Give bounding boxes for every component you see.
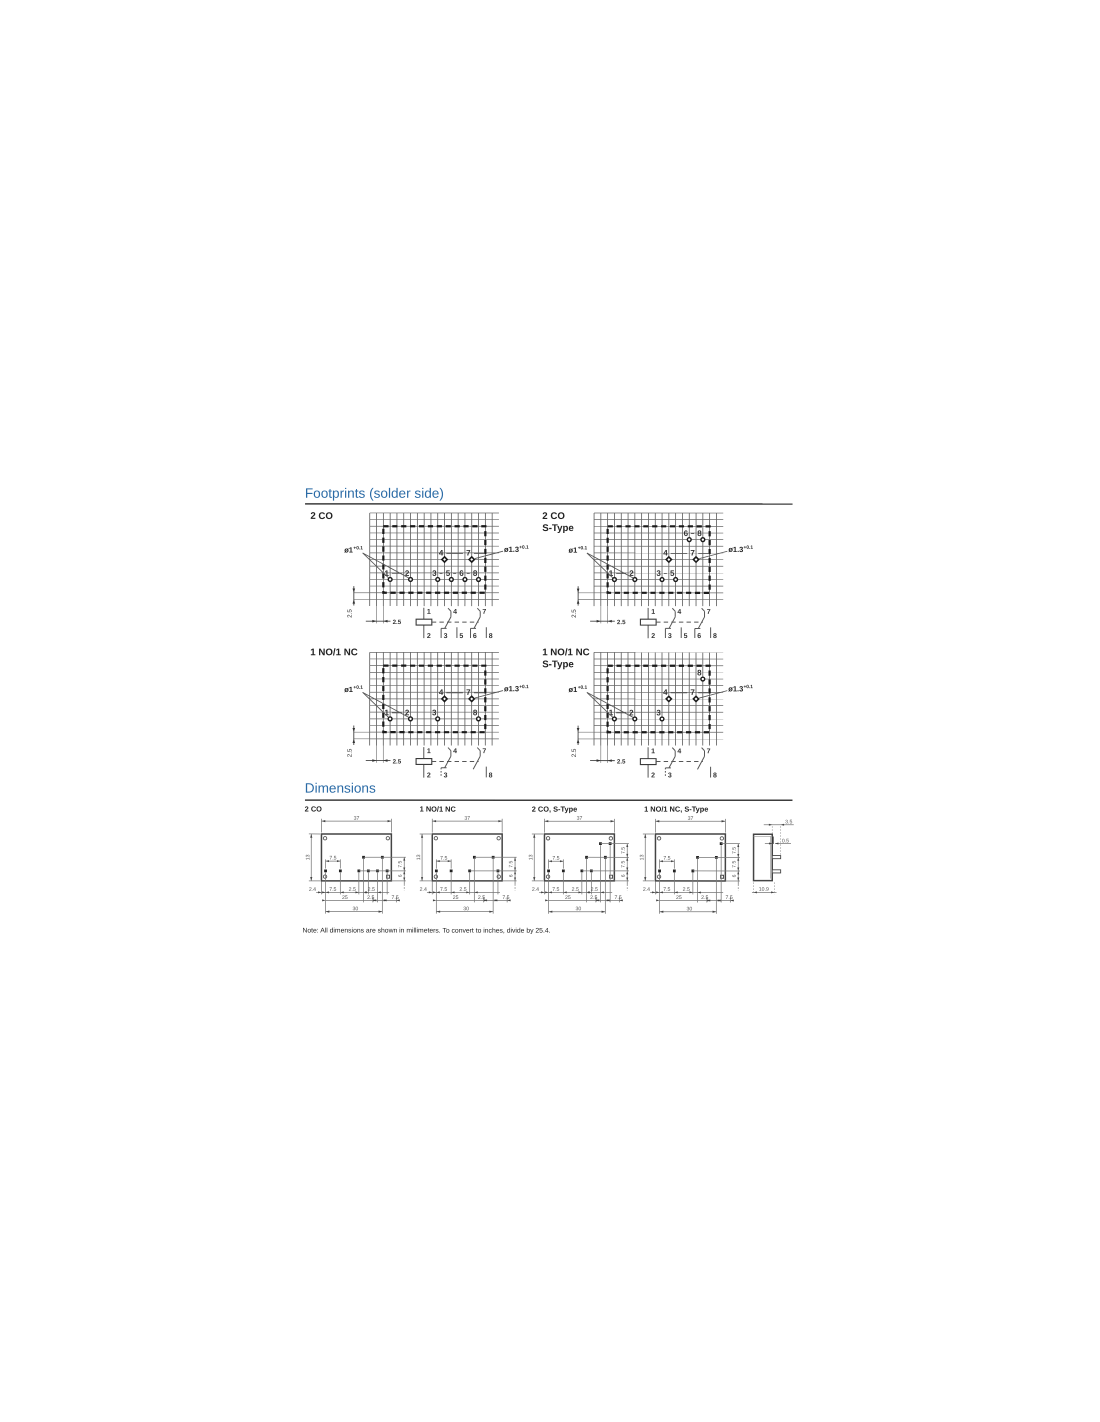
svg-text:7.5: 7.5 <box>726 895 733 901</box>
svg-text:7.5: 7.5 <box>732 847 738 854</box>
svg-text:S-Type: S-Type <box>542 523 574 534</box>
svg-text:8: 8 <box>489 772 493 779</box>
svg-text:30: 30 <box>686 906 692 912</box>
svg-text:3: 3 <box>668 772 672 779</box>
svg-text:7.5: 7.5 <box>552 887 559 893</box>
svg-text:2 CO: 2 CO <box>305 805 323 814</box>
svg-text:2 CO: 2 CO <box>310 511 333 522</box>
svg-text:25: 25 <box>453 895 459 901</box>
svg-text:+0.1: +0.1 <box>519 545 529 551</box>
svg-text:7.5: 7.5 <box>508 860 514 867</box>
svg-text:7.5: 7.5 <box>621 847 627 854</box>
svg-text:+0.1: +0.1 <box>353 545 363 551</box>
svg-text:7: 7 <box>707 748 711 755</box>
svg-text:Note: All dimensions are shown: Note: All dimensions are shown in millim… <box>302 928 550 935</box>
svg-text:3: 3 <box>656 708 661 717</box>
svg-text:1 NO/1 NC, S-Type: 1 NO/1 NC, S-Type <box>644 805 708 814</box>
svg-text:8: 8 <box>713 772 717 779</box>
svg-text:Dimensions: Dimensions <box>305 781 376 796</box>
svg-text:2.4: 2.4 <box>532 887 539 893</box>
svg-text:5: 5 <box>446 569 451 578</box>
svg-text:7.5: 7.5 <box>329 856 336 862</box>
svg-text:7.5: 7.5 <box>329 887 336 893</box>
svg-text:+0.1: +0.1 <box>744 545 754 551</box>
svg-text:2.5: 2.5 <box>393 619 402 626</box>
svg-text:2.5: 2.5 <box>617 759 626 766</box>
svg-text:1: 1 <box>651 609 655 616</box>
svg-text:3: 3 <box>432 569 437 578</box>
svg-text:5: 5 <box>459 633 463 640</box>
svg-text:S-Type: S-Type <box>542 659 574 670</box>
svg-text:2: 2 <box>651 633 655 640</box>
svg-text:7.5: 7.5 <box>502 895 509 901</box>
svg-text:2.4: 2.4 <box>309 887 316 893</box>
svg-text:4: 4 <box>439 548 444 557</box>
svg-text:7.5: 7.5 <box>615 895 622 901</box>
svg-text:ø1: ø1 <box>569 685 578 694</box>
svg-text:7: 7 <box>466 548 471 557</box>
svg-text:6: 6 <box>398 874 404 877</box>
svg-text:Footprints (solder side): Footprints (solder side) <box>305 486 444 501</box>
svg-text:2.5: 2.5 <box>590 895 597 901</box>
svg-text:6: 6 <box>684 529 689 538</box>
svg-text:4: 4 <box>453 748 457 755</box>
svg-text:25: 25 <box>342 895 348 901</box>
svg-text:3: 3 <box>656 569 661 578</box>
svg-text:3: 3 <box>432 708 437 717</box>
svg-text:7.5: 7.5 <box>663 887 670 893</box>
svg-text:2.5: 2.5 <box>347 748 354 757</box>
svg-text:7.5: 7.5 <box>392 895 399 901</box>
svg-text:2.5: 2.5 <box>478 895 485 901</box>
svg-text:10.9: 10.9 <box>759 887 769 893</box>
svg-text:13: 13 <box>639 854 645 860</box>
svg-text:3: 3 <box>668 633 672 640</box>
svg-text:8: 8 <box>713 633 717 640</box>
svg-text:4: 4 <box>677 609 681 616</box>
svg-text:2.5: 2.5 <box>572 887 579 893</box>
svg-text:2.5: 2.5 <box>591 887 598 893</box>
svg-text:0.5: 0.5 <box>782 838 789 844</box>
svg-text:8: 8 <box>697 529 702 538</box>
svg-text:ø1.3: ø1.3 <box>504 684 519 693</box>
svg-text:+0.1: +0.1 <box>578 685 588 691</box>
svg-text:2.5: 2.5 <box>571 748 578 757</box>
svg-text:2.5: 2.5 <box>701 895 708 901</box>
svg-text:1: 1 <box>427 748 431 755</box>
svg-text:2.5: 2.5 <box>347 609 354 618</box>
svg-text:13: 13 <box>528 854 534 860</box>
svg-text:5: 5 <box>670 569 675 578</box>
svg-text:3.5: 3.5 <box>785 819 792 825</box>
svg-text:6: 6 <box>509 874 515 877</box>
svg-text:2.5: 2.5 <box>367 895 374 901</box>
svg-text:6: 6 <box>621 874 627 877</box>
svg-text:37: 37 <box>688 816 694 822</box>
svg-text:30: 30 <box>352 906 358 912</box>
svg-text:ø1.3: ø1.3 <box>728 684 743 693</box>
svg-text:7: 7 <box>707 609 711 616</box>
svg-text:37: 37 <box>354 816 360 822</box>
svg-text:2.5: 2.5 <box>617 619 626 626</box>
svg-text:8: 8 <box>473 708 478 717</box>
svg-text:7.5: 7.5 <box>440 856 447 862</box>
svg-text:7.5: 7.5 <box>440 887 447 893</box>
svg-text:25: 25 <box>676 895 682 901</box>
svg-text:6: 6 <box>732 874 738 877</box>
svg-text:2.4: 2.4 <box>643 887 650 893</box>
svg-text:7: 7 <box>482 609 486 616</box>
svg-text:7.5: 7.5 <box>552 856 559 862</box>
svg-text:ø1: ø1 <box>569 546 578 555</box>
svg-text:2: 2 <box>427 772 431 779</box>
svg-text:2: 2 <box>427 633 431 640</box>
svg-text:4: 4 <box>453 609 457 616</box>
svg-text:6: 6 <box>459 569 464 578</box>
svg-text:1: 1 <box>651 748 655 755</box>
svg-text:30: 30 <box>575 906 581 912</box>
svg-text:25: 25 <box>565 895 571 901</box>
svg-text:ø1: ø1 <box>344 685 353 694</box>
svg-text:2.5: 2.5 <box>683 887 690 893</box>
svg-text:5: 5 <box>684 633 688 640</box>
svg-text:7: 7 <box>690 549 695 558</box>
svg-text:2.5: 2.5 <box>349 887 356 893</box>
svg-text:6: 6 <box>473 633 477 640</box>
svg-text:2: 2 <box>651 772 655 779</box>
svg-text:1: 1 <box>427 609 431 616</box>
svg-text:3: 3 <box>444 633 448 640</box>
svg-text:ø1: ø1 <box>344 546 353 555</box>
svg-text:4: 4 <box>663 549 668 558</box>
svg-text:1 NO/1 NC: 1 NO/1 NC <box>542 647 589 658</box>
svg-text:8: 8 <box>473 569 478 578</box>
svg-text:2.5: 2.5 <box>459 887 466 893</box>
svg-text:7.5: 7.5 <box>621 861 627 868</box>
svg-text:30: 30 <box>463 906 469 912</box>
svg-text:1 NO/1 NC: 1 NO/1 NC <box>420 805 457 814</box>
svg-text:4: 4 <box>677 748 681 755</box>
svg-text:7: 7 <box>482 748 486 755</box>
svg-text:3: 3 <box>444 772 448 779</box>
svg-text:4: 4 <box>439 688 444 697</box>
svg-text:7.5: 7.5 <box>398 860 404 867</box>
svg-text:2.4: 2.4 <box>420 887 427 893</box>
svg-text:13: 13 <box>305 854 311 860</box>
svg-text:7: 7 <box>690 688 695 697</box>
svg-text:37: 37 <box>577 816 583 822</box>
svg-text:+0.1: +0.1 <box>578 545 588 551</box>
svg-text:7: 7 <box>466 688 471 697</box>
svg-text:+0.1: +0.1 <box>519 684 529 690</box>
svg-text:2.5: 2.5 <box>393 758 402 765</box>
svg-text:ø1.3: ø1.3 <box>728 545 743 554</box>
svg-text:8: 8 <box>489 633 493 640</box>
svg-text:8: 8 <box>697 668 702 677</box>
svg-text:2 CO, S-Type: 2 CO, S-Type <box>532 805 577 814</box>
svg-text:37: 37 <box>464 816 470 822</box>
svg-text:+0.1: +0.1 <box>353 685 363 691</box>
svg-text:7.5: 7.5 <box>663 856 670 862</box>
svg-text:+0.1: +0.1 <box>744 684 754 690</box>
svg-text:2.5: 2.5 <box>368 887 375 893</box>
svg-text:7.5: 7.5 <box>732 861 738 868</box>
svg-text:ø1.3: ø1.3 <box>504 545 519 554</box>
svg-text:6: 6 <box>697 633 701 640</box>
svg-text:2 CO: 2 CO <box>542 511 565 522</box>
svg-text:2.5: 2.5 <box>571 609 578 618</box>
svg-text:4: 4 <box>663 688 668 697</box>
svg-text:1 NO/1 NC: 1 NO/1 NC <box>310 647 357 658</box>
svg-text:13: 13 <box>416 854 422 860</box>
